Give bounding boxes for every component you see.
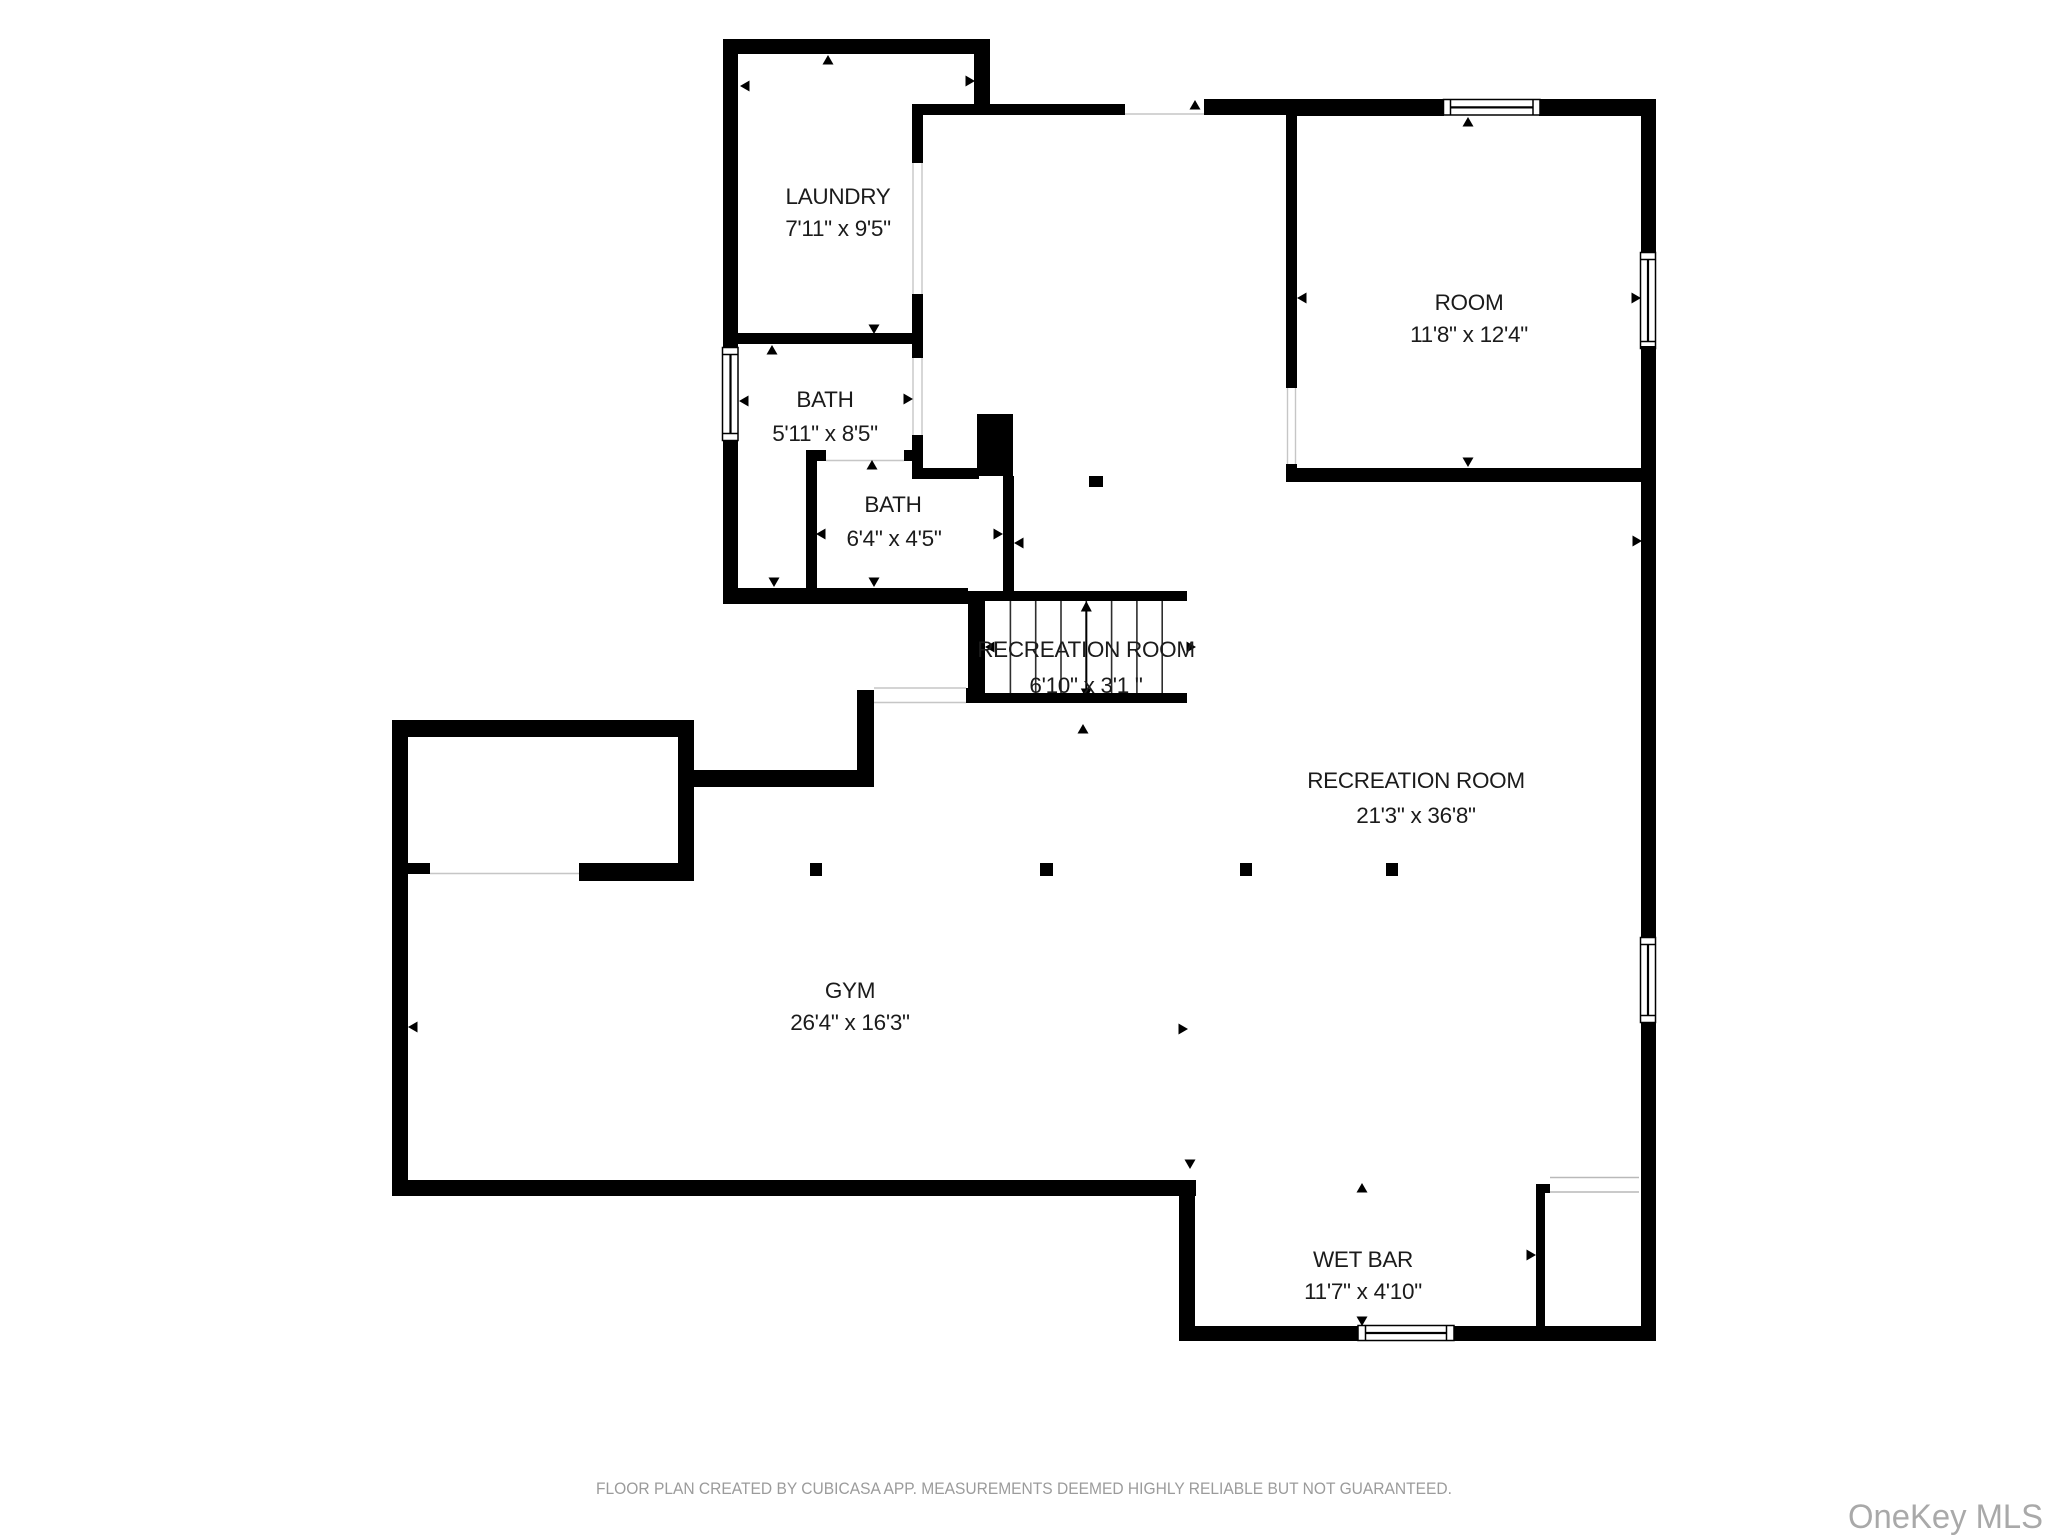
svg-text:ROOM: ROOM	[1435, 290, 1504, 315]
svg-text:OneKey MLS: OneKey MLS	[1848, 1498, 2043, 1536]
svg-text:RECREATION ROOM: RECREATION ROOM	[1307, 768, 1525, 793]
svg-text:6'10" x 3'1 ": 6'10" x 3'1 "	[1029, 673, 1143, 698]
svg-text:21'3" x 36'8": 21'3" x 36'8"	[1356, 803, 1476, 828]
svg-text:LAUNDRY: LAUNDRY	[785, 184, 890, 209]
svg-text:RECREATION ROOM: RECREATION ROOM	[977, 637, 1195, 662]
svg-text:11'7" x 4'10": 11'7" x 4'10"	[1304, 1279, 1422, 1304]
svg-text:GYM: GYM	[825, 978, 875, 1003]
svg-text:6'4" x 4'5": 6'4" x 4'5"	[846, 526, 941, 551]
svg-text:BATH: BATH	[796, 387, 853, 412]
svg-text:5'11" x 8'5": 5'11" x 8'5"	[772, 421, 878, 446]
svg-text:11'8" x 12'4": 11'8" x 12'4"	[1410, 322, 1528, 347]
svg-text:BATH: BATH	[864, 492, 921, 517]
svg-text:26'4" x 16'3": 26'4" x 16'3"	[790, 1010, 910, 1035]
svg-text:WET BAR: WET BAR	[1313, 1247, 1413, 1272]
svg-text:7'11" x 9'5": 7'11" x 9'5"	[785, 216, 891, 241]
svg-text:FLOOR PLAN CREATED BY CUBICASA: FLOOR PLAN CREATED BY CUBICASA APP. MEAS…	[596, 1479, 1452, 1498]
